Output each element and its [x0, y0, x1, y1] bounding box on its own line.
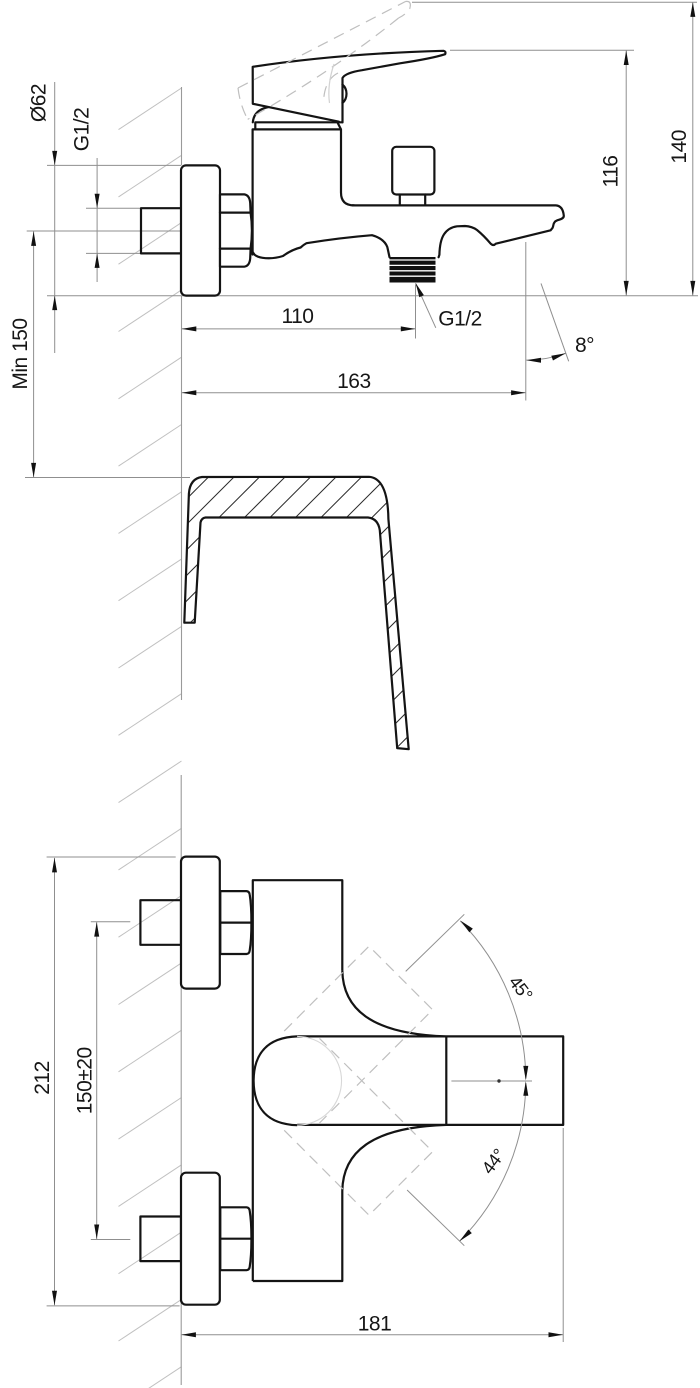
svg-text:G1/2: G1/2: [71, 108, 94, 152]
svg-text:140: 140: [668, 130, 691, 164]
svg-text:163: 163: [337, 370, 371, 393]
svg-text:Ø62: Ø62: [28, 84, 51, 122]
svg-text:116: 116: [600, 156, 623, 188]
svg-text:110: 110: [282, 305, 314, 328]
svg-text:Min 150: Min 150: [9, 318, 32, 389]
svg-text:212: 212: [31, 1061, 54, 1095]
svg-text:G1/2: G1/2: [438, 308, 482, 331]
svg-text:8°: 8°: [575, 334, 594, 357]
svg-text:181: 181: [358, 1313, 392, 1336]
svg-text:150±20: 150±20: [73, 1047, 96, 1114]
